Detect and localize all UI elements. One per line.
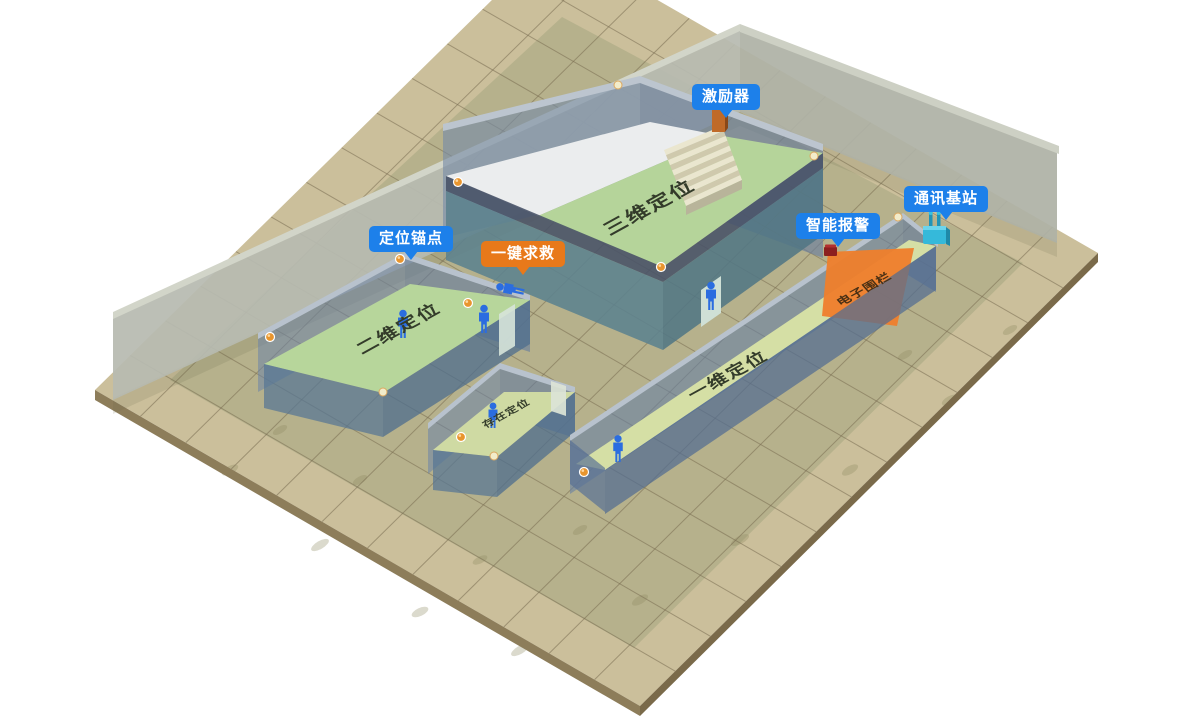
scene-svg <box>0 0 1200 723</box>
anchor-dot-icon <box>464 299 473 308</box>
callout-arrow-icon <box>831 238 845 247</box>
callout-exciter: 激励器 <box>692 84 760 118</box>
room-presence-front-left-wall <box>433 450 497 497</box>
anchor-dot-icon <box>457 433 466 442</box>
callout-sos-label: 一键求救 <box>481 241 565 267</box>
callout-exciter-label: 激励器 <box>692 84 760 110</box>
anchor-dot-icon <box>490 452 498 460</box>
room-presence-doorway <box>551 381 566 416</box>
anchor-dot-icon <box>894 213 902 221</box>
callout-arrow-icon <box>404 251 418 260</box>
callout-smart-alarm-label: 智能报警 <box>796 213 880 239</box>
anchor-dot-icon <box>657 263 666 272</box>
anchor-dot-icon <box>379 388 387 396</box>
anchor-dot-icon <box>454 178 463 187</box>
callout-arrow-icon <box>719 109 733 118</box>
callout-arrow-icon <box>939 211 953 220</box>
callout-sos: 一键求救 <box>481 241 565 275</box>
positioning-system-diagram: 三维定位 二维定位 存在定位 一维定位 电子围栏 激励器 通讯基站 智能报警 定… <box>0 0 1200 723</box>
callout-smart-alarm: 智能报警 <box>796 213 880 247</box>
callout-arrow-icon <box>516 266 530 275</box>
anchor-dot-icon <box>614 81 622 89</box>
callout-anchor-label: 定位锚点 <box>369 226 453 252</box>
callout-base-station: 通讯基站 <box>904 186 988 220</box>
anchor-dot-icon <box>810 152 818 160</box>
callout-anchor: 定位锚点 <box>369 226 453 260</box>
callout-base-station-label: 通讯基站 <box>904 186 988 212</box>
anchor-dot-icon <box>266 333 275 342</box>
anchor-dot-icon <box>580 468 589 477</box>
